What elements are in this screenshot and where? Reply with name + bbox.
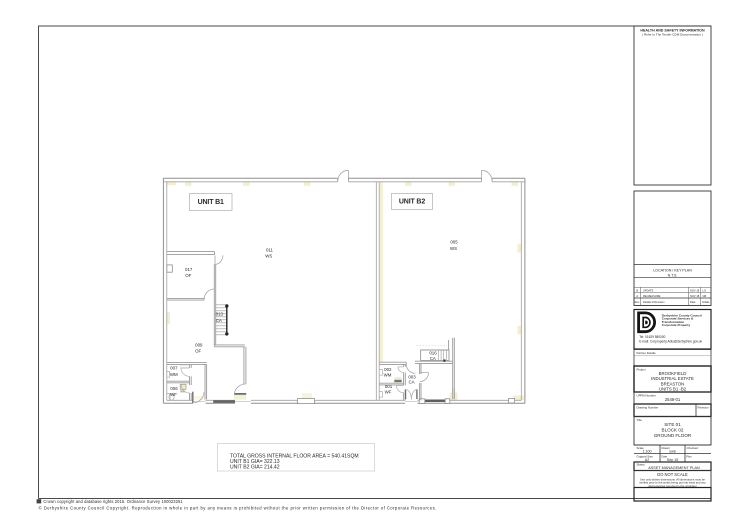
svg-text:CA: CA <box>430 356 436 361</box>
svg-text:Corporate Property: Corporate Property <box>662 323 691 327</box>
svg-text:Revision: Revision <box>698 405 709 409</box>
svg-text:LG: LG <box>703 289 706 293</box>
svg-text:OF: OF <box>185 273 191 278</box>
svg-text:Drawing Number: Drawing Number <box>637 405 659 409</box>
svg-text:Date: Date <box>690 300 696 304</box>
svg-text:( Refer to The Tender CDM Docu: ( Refer to The Tender CDM Documentation … <box>642 33 703 37</box>
svg-text:Rev.: Rev. <box>635 300 640 304</box>
svg-text:002: 002 <box>384 367 392 372</box>
svg-text:CA: CA <box>408 379 414 384</box>
svg-text:UPDATE: UPDATE <box>643 289 654 293</box>
svg-text:006: 006 <box>170 386 178 391</box>
svg-text:A: A <box>636 294 638 298</box>
svg-text:NOV 18: NOV 18 <box>690 294 700 298</box>
svg-text:Project: Project <box>637 367 646 371</box>
svg-text:CA: CA <box>216 318 222 323</box>
svg-text:WF: WF <box>170 392 177 397</box>
svg-text:LOCATION / KEY PLAN: LOCATION / KEY PLAN <box>653 269 692 273</box>
svg-text:005: 005 <box>450 240 458 245</box>
svg-text:Tel: 01629 580000: Tel: 01629 580000 <box>639 335 665 339</box>
svg-text:UNIT B2 GIA= 214.42: UNIT B2 GIA= 214.42 <box>230 464 280 470</box>
svg-text:Partner Details: Partner Details <box>637 351 657 355</box>
svg-text:011: 011 <box>266 247 274 252</box>
svg-text:E-mail: Corproperty.Adts@derby: E-mail: Corproperty.Adts@derbyshire.gov.… <box>639 340 702 344</box>
svg-text:WM: WM <box>384 372 392 377</box>
svg-text:NOV 18: NOV 18 <box>690 289 700 293</box>
svg-text:WS: WS <box>265 254 272 259</box>
svg-text:© Derbyshire County Council Co: © Derbyshire County Council Copyright. R… <box>39 505 437 510</box>
svg-text:WF: WF <box>385 390 392 395</box>
svg-text:UNIT B2: UNIT B2 <box>399 199 425 206</box>
svg-text:007: 007 <box>170 366 178 371</box>
svg-text:B: B <box>636 289 638 293</box>
svg-text:016: 016 <box>429 350 437 355</box>
svg-text:GB: GB <box>703 294 707 298</box>
svg-text:WS: WS <box>450 246 457 251</box>
svg-text:OF: OF <box>195 348 201 353</box>
svg-text:WM: WM <box>170 372 178 377</box>
svg-text:UPRN Number: UPRN Number <box>637 393 656 397</box>
svg-text:RE-MEASURE: RE-MEASURE <box>643 294 661 298</box>
svg-text:001: 001 <box>385 384 393 389</box>
svg-text:swb: swb <box>669 450 675 454</box>
svg-text:ASSET MANAGEMENT PLAN: ASSET MANAGEMENT PLAN <box>648 466 700 470</box>
svg-text:Title: Title <box>637 418 643 422</box>
svg-text:SITE 01: SITE 01 <box>664 422 681 427</box>
svg-text:BLOCK 02: BLOCK 02 <box>662 427 684 432</box>
svg-text:N.T.S.: N.T.S. <box>668 273 678 277</box>
svg-text:2548-01: 2548-01 <box>665 397 681 402</box>
svg-text:Checked: Checked <box>687 446 699 450</box>
svg-text:013: 013 <box>216 312 224 317</box>
svg-text:1:100: 1:100 <box>643 450 652 454</box>
svg-text:017: 017 <box>185 267 193 272</box>
svg-text:UNIT B1: UNIT B1 <box>198 199 224 206</box>
svg-text:UNITS B1 -B2: UNITS B1 -B2 <box>659 386 687 391</box>
svg-text:Rev: Rev <box>687 455 693 459</box>
svg-text:Details of Revision: Details of Revision <box>643 300 665 304</box>
svg-text:GROUND FLOOR: GROUND FLOOR <box>654 433 692 438</box>
svg-text:Status: Status <box>637 463 646 467</box>
svg-text:Crown copyright and database r: Crown copyright and database rights 2015… <box>43 499 183 504</box>
svg-text:Initials: Initials <box>702 300 710 304</box>
svg-text:009: 009 <box>195 342 203 347</box>
